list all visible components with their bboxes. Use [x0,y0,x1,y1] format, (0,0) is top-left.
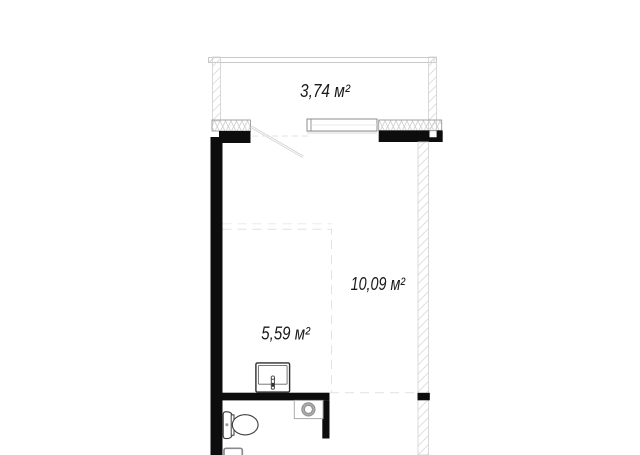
svg-text:5,59 м²: 5,59 м² [261,324,311,344]
svg-text:10,09 м²: 10,09 м² [351,274,406,294]
svg-text:3,74 м²: 3,74 м² [300,81,351,101]
